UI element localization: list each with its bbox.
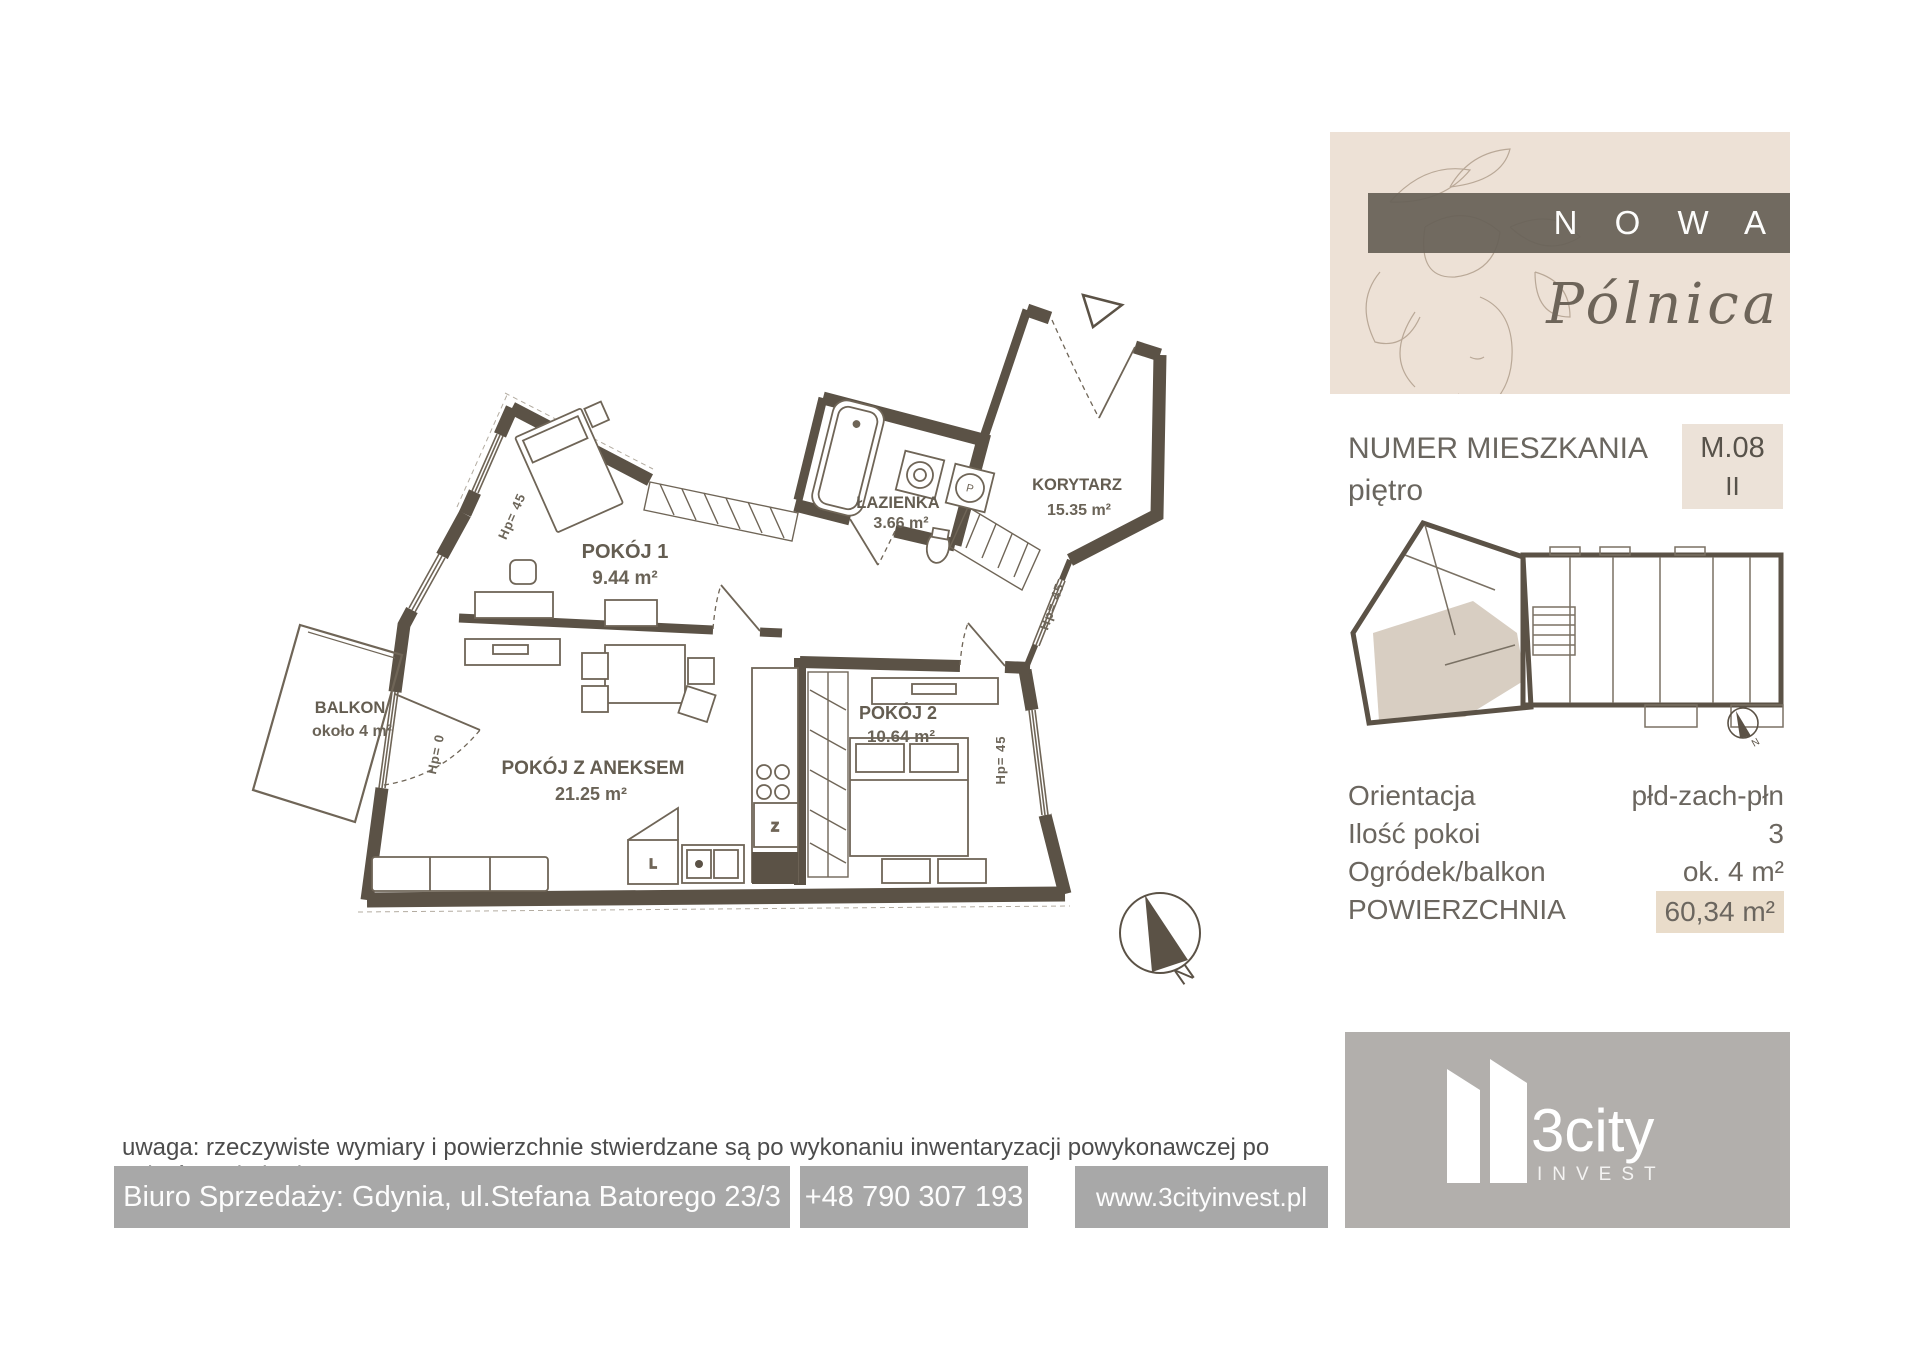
room-label: POKÓJ 2 <box>859 702 937 723</box>
north-label: N <box>1750 736 1762 749</box>
unit-number-label: NUMER MIESZKANIA <box>1348 432 1648 466</box>
phone-bar: +48 790 307 193 <box>800 1166 1028 1228</box>
detail-row: Ilość pokoi 3 <box>1348 815 1784 853</box>
room-area: 3.66 m² <box>873 515 928 532</box>
hp45-annotation: Hp= 45 <box>495 491 529 542</box>
detail-label: Ogródek/balkon <box>1348 853 1546 891</box>
brand-panel: N O W A Pólnica <box>1330 132 1790 394</box>
room-label: BALKON <box>315 699 386 717</box>
unit-highlight <box>1373 601 1525 721</box>
fridge-label: L <box>649 856 656 871</box>
brand-title-banner: N O W A <box>1368 193 1790 253</box>
detail-row: POWIERZCHNIA 60,34 m² <box>1348 891 1784 929</box>
detail-label: Orientacja <box>1348 777 1476 815</box>
detail-value-area: 60,34 m² <box>1656 891 1785 933</box>
detail-value: 3 <box>1768 815 1784 853</box>
detail-value: płd-zach-płn <box>1631 777 1784 815</box>
floorplan: Z L P POKÓJ 1 9.44 m² <box>150 260 1300 1040</box>
unit-value-box: M.08 II <box>1682 424 1783 509</box>
room-label: POKÓJ Z ANEKSEM <box>502 757 685 779</box>
detail-row: Ogródek/balkon ok. 4 m² <box>1348 853 1784 891</box>
company-name: 3city <box>1531 1097 1654 1164</box>
unit-number-value: M.08 <box>1682 424 1783 465</box>
company-logo: 3city INVEST <box>1345 1032 1790 1228</box>
building-key-plan: N <box>1345 515 1790 795</box>
room-area: 21.25 m² <box>555 784 627 804</box>
minimap-compass: N <box>1728 708 1762 750</box>
detail-value: ok. 4 m² <box>1683 853 1784 891</box>
room-area: 9.44 m² <box>592 568 657 589</box>
compass: N <box>1120 893 1200 991</box>
sales-office-bar: Biuro Sprzedaży: Gdynia, ul.Stefana Bato… <box>114 1166 790 1228</box>
room-area: 15.35 m² <box>1047 502 1111 519</box>
detail-label: Ilość pokoi <box>1348 815 1480 853</box>
floor-value: II <box>1682 465 1783 502</box>
details-table: Orientacja płd-zach-płn Ilość pokoi 3 Og… <box>1348 777 1784 929</box>
room-label: ŁAZIENKA <box>856 494 939 512</box>
detail-row: Orientacja płd-zach-płn <box>1348 777 1784 815</box>
company-sub: INVEST <box>1537 1164 1666 1185</box>
website-bar: www.3cityinvest.pl <box>1075 1166 1328 1228</box>
brand-subtitle: Pólnica <box>1450 272 1780 337</box>
floor-label: piętro <box>1348 474 1423 508</box>
room-area: około 4 m² <box>312 723 392 740</box>
sink-label: Z <box>771 820 778 834</box>
hp45-annotation: Hp= 45 <box>993 736 1008 785</box>
room-area: 10.64 m² <box>867 727 935 746</box>
detail-label: POWIERZCHNIA <box>1348 891 1566 929</box>
room-label: POKÓJ 1 <box>582 539 669 563</box>
hp45-annotation: Hp= 45 <box>1036 581 1067 632</box>
flower-face-art-icon <box>1330 132 1790 394</box>
hp0-annotation: Hp= 0 <box>424 733 447 776</box>
room-label: KORYTARZ <box>1032 476 1122 494</box>
entrance-marker-icon <box>1083 295 1122 327</box>
